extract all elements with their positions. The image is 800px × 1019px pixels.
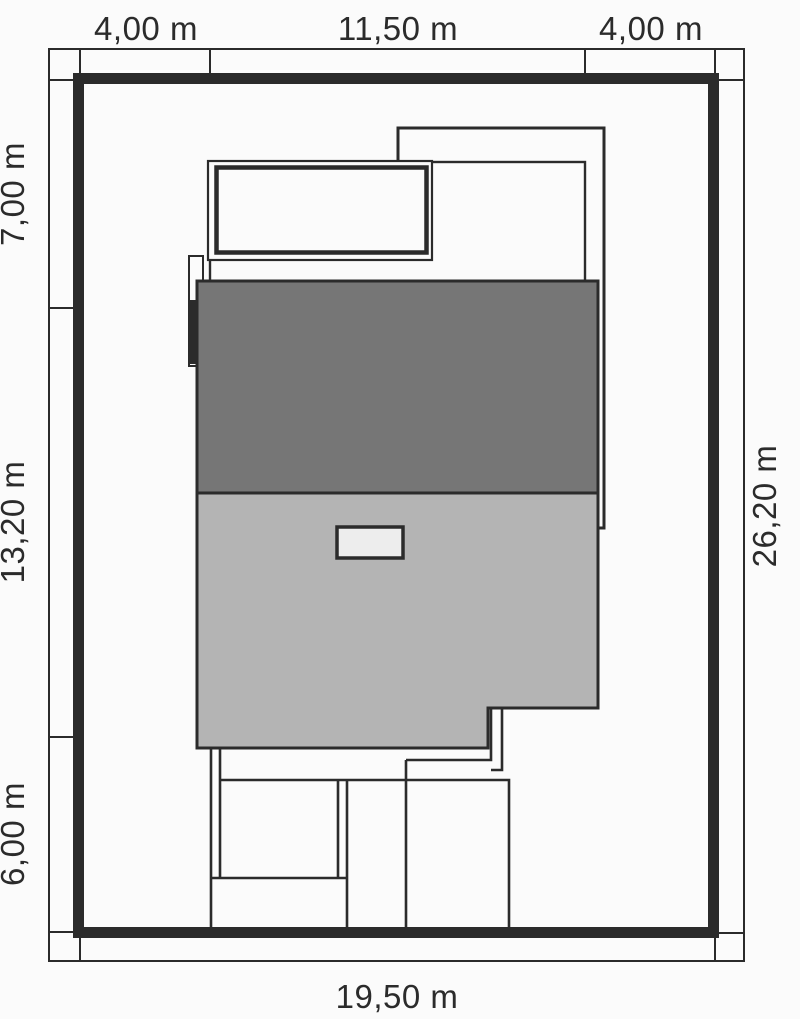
dim-left-middle: 13,20 m [0,461,31,584]
dim-top-center: 11,50 m [338,10,458,47]
dim-left-lower: 6,00 m [0,782,31,886]
terrace-outline-inner [217,168,427,253]
site-plan: 4,00 m 11,50 m 4,00 m 7,00 m 13,20 m 6,0… [0,0,800,1019]
roof-skylight [337,527,403,558]
dim-left-upper: 7,00 m [0,142,31,246]
dim-top-left: 4,00 m [94,10,198,47]
roof [197,281,598,748]
dim-right: 26,20 m [746,445,783,568]
roof-upper-slope [197,281,598,493]
dim-top-right: 4,00 m [599,10,703,47]
site-plan-drawing: 4,00 m 11,50 m 4,00 m 7,00 m 13,20 m 6,0… [0,0,800,1019]
dim-bottom: 19,50 m [336,978,459,1015]
